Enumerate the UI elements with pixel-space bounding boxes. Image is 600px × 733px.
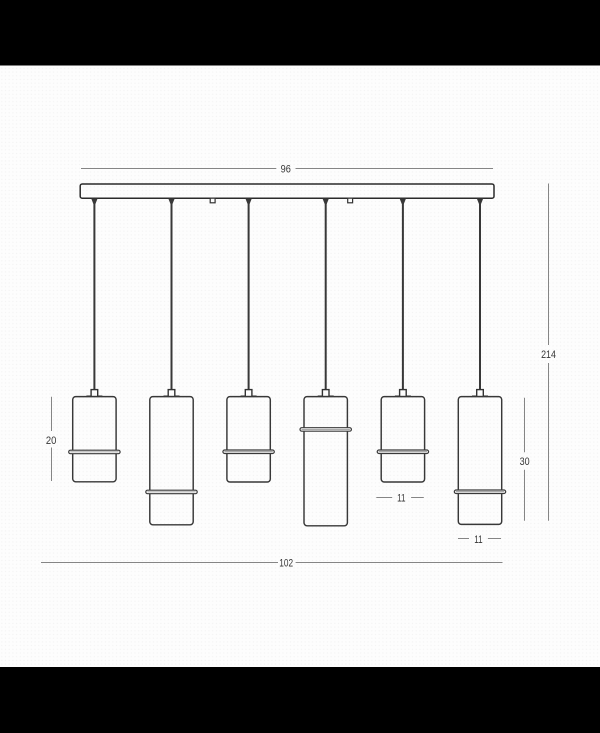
svg-text:11: 11: [474, 534, 482, 546]
svg-text:96: 96: [281, 164, 291, 176]
svg-text:214: 214: [541, 349, 556, 361]
svg-text:11: 11: [397, 493, 405, 505]
svg-text:30: 30: [520, 456, 530, 468]
svg-text:20: 20: [46, 435, 57, 447]
svg-text:102: 102: [279, 558, 293, 570]
